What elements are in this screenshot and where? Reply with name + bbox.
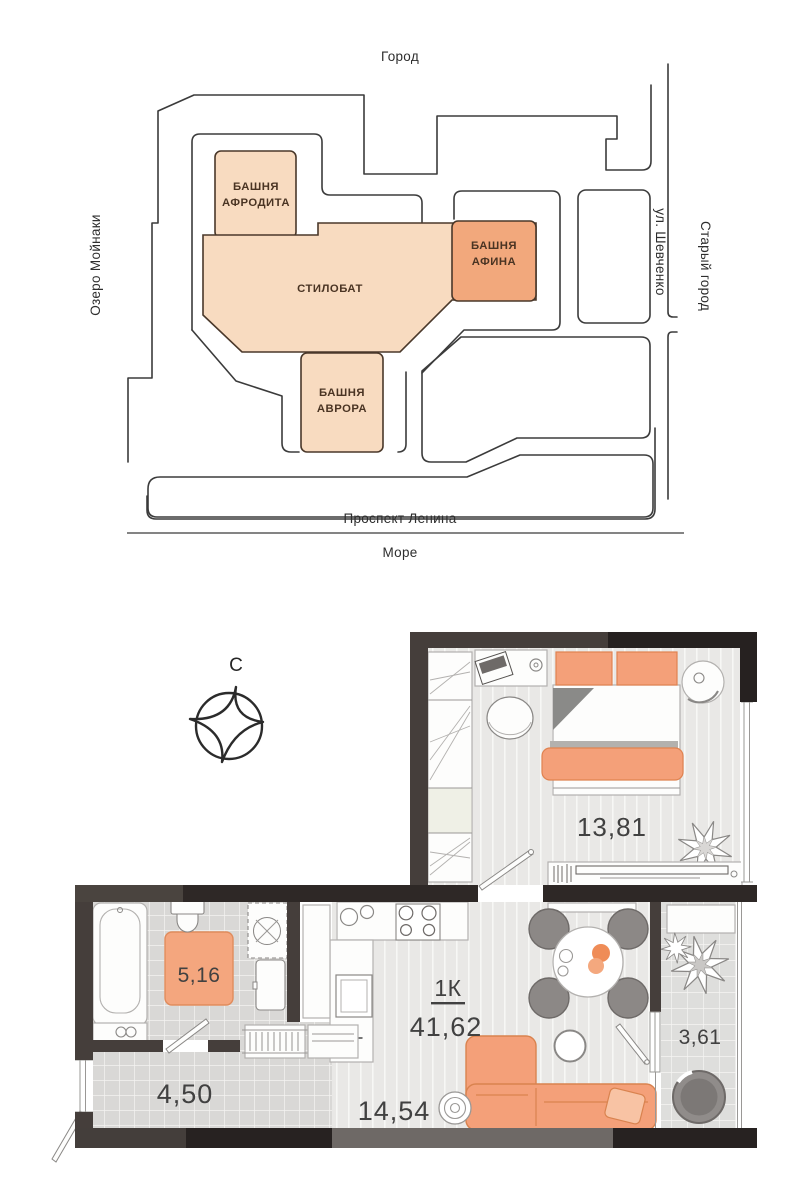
- label-aphrodite-line2: АФРОДИТА: [222, 197, 290, 209]
- unit-type-label: 1К: [434, 975, 461, 1001]
- stove-icon: [396, 904, 440, 940]
- bed: [542, 652, 683, 795]
- label-aphrodite-line1: БАШНЯ: [233, 181, 279, 193]
- label-aurora-line2: АВРОРА: [317, 403, 367, 415]
- bedside-table: [682, 661, 724, 703]
- entrance-window: [75, 1060, 93, 1112]
- label-aurora-line1: БАШНЯ: [319, 387, 365, 399]
- buildings: БАШНЯ АФРОДИТА СТИЛОБАТ БАШНЯ АФИНА БАШН…: [203, 151, 536, 452]
- label-city: Город: [381, 49, 419, 64]
- label-lake-moynaki: Озеро Мойнаки: [88, 214, 103, 316]
- papasan-chair: [673, 1071, 725, 1123]
- compass-north-letter: С: [229, 655, 243, 676]
- floor-lamp-icon: [555, 1031, 586, 1062]
- wardrobe: [428, 652, 472, 882]
- road-shevchenko-lower: [668, 332, 677, 499]
- label-old-city: Старый город: [698, 221, 713, 311]
- bedroom-window: [741, 702, 755, 882]
- bathtub: [93, 903, 147, 1041]
- unit-type-underline: [431, 1002, 465, 1004]
- wall-lamp-icon: [530, 659, 542, 671]
- bathroom-cabinet: [253, 960, 285, 1010]
- shoe-rack: [242, 1025, 358, 1058]
- fridge-icon: [336, 975, 372, 1017]
- pouf: [487, 697, 533, 739]
- pillow: [556, 652, 612, 685]
- washing-machine-icon: [248, 903, 287, 958]
- road-block-east: [578, 190, 650, 323]
- kitchen-living-area: 14,54: [358, 1096, 431, 1126]
- label-lenina-avenue: Проспект Ленина: [343, 511, 456, 526]
- bedroom-area: 13,81: [577, 812, 647, 842]
- balcony-shelf: [667, 905, 735, 933]
- bed-runner: [542, 748, 683, 780]
- road-shevchenko-upper: [668, 64, 677, 317]
- label-athena-line1: БАШНЯ: [471, 240, 517, 252]
- road-aurora-east-edge: [398, 372, 406, 452]
- label-athena-line2: АФИНА: [472, 256, 516, 268]
- bathroom-area: 5,16: [178, 964, 221, 987]
- floor-plan: С: [0, 600, 810, 1200]
- balcony-area: 3,61: [679, 1026, 722, 1049]
- road-south-boundary: [147, 428, 655, 519]
- site-plan: БАШНЯ АФРОДИТА СТИЛОБАТ БАШНЯ АФИНА БАШН…: [0, 0, 810, 600]
- road-block-south-strip: [148, 455, 653, 517]
- label-shevchenko-street: ул. Шевченко: [653, 208, 668, 295]
- road-block-southeast: [422, 337, 650, 462]
- total-area-label: 41,62: [410, 1012, 483, 1042]
- pantry-cabinet: [303, 905, 330, 1018]
- side-table: [439, 1092, 471, 1124]
- hallway-area: 4,50: [157, 1079, 214, 1109]
- balcony-glazing: [738, 902, 742, 1135]
- label-sea: Море: [382, 545, 417, 560]
- compass-icon: С: [190, 655, 263, 762]
- listing-graphic: БАШНЯ АФРОДИТА СТИЛОБАТ БАШНЯ АФИНА БАШН…: [0, 0, 810, 1200]
- desk: [475, 650, 547, 686]
- label-stylobate: СТИЛОБАТ: [297, 283, 363, 295]
- building-tower-aphrodite: [215, 151, 296, 238]
- pillow: [617, 652, 677, 685]
- tv-stand: [548, 862, 742, 886]
